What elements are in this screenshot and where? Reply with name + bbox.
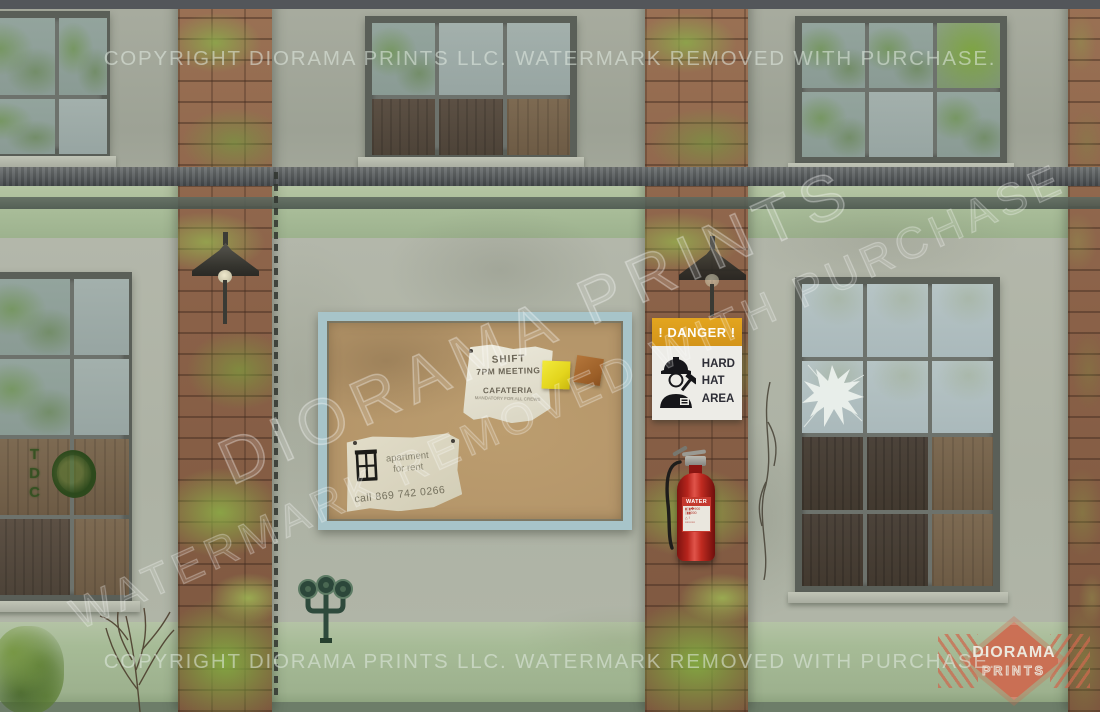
boarded-pane: [74, 519, 129, 595]
brick-pillar-right: [1068, 0, 1100, 712]
window-pane-broken: [802, 361, 863, 434]
push-pin: [451, 439, 455, 443]
boarded-pane: [867, 514, 928, 587]
window-pane: [937, 92, 1000, 157]
window-pane: [867, 284, 928, 357]
extinguisher-label: WATER ▮▯▮�900▯▮▮000△ !▭▭▭: [682, 497, 711, 532]
brick-pillar-left: [178, 0, 272, 712]
window-lower-left: [0, 272, 132, 602]
meeting-note-line2: 7PM MEETING: [464, 365, 552, 377]
pipe-valves: [293, 572, 365, 646]
flyer-phone: call 869 742 0266: [354, 482, 463, 505]
fire-extinguisher: WATER ▮▯▮�900▯▮▮000△ !▭▭▭: [662, 442, 724, 570]
boarded-pane: [802, 514, 863, 587]
window-pane: [932, 361, 993, 434]
window-sill: [0, 156, 116, 167]
window-upper-left: [0, 11, 110, 157]
moss-overlay: [1068, 0, 1100, 712]
danger-line-hard: HARD: [702, 356, 735, 373]
window-upper-right: [795, 16, 1007, 164]
graffiti-area: TDC: [26, 444, 116, 506]
brown-note: [573, 355, 604, 386]
meeting-note-line4: MANDATORY FOR ALL CREWS: [464, 395, 552, 402]
bulletin-board: SHIFT 7PM MEETING CAFATERIA MANDATORY FO…: [318, 312, 632, 530]
steel-beam-lower: [0, 197, 1100, 209]
lamp-bracket: [223, 280, 227, 324]
diorama-print-scene: TDC: [0, 0, 1100, 712]
push-pin: [353, 441, 357, 445]
green-paint-band-top: [0, 184, 1100, 238]
steel-beam-upper: [0, 167, 1100, 186]
lamp-bracket: [710, 284, 714, 316]
extinguisher-label-text: WATER: [683, 498, 710, 506]
wall-lamp-left: [192, 232, 259, 324]
boarded-pane: [372, 99, 435, 155]
window-pane: [0, 99, 55, 154]
window-lower-right: [795, 277, 1000, 593]
dried-vine: [750, 382, 786, 580]
window-pane: [59, 99, 107, 154]
yellow-sticky-note: [542, 361, 571, 390]
window-pane: [802, 92, 865, 157]
window-pane: [0, 279, 70, 355]
window-sill: [788, 592, 1008, 603]
graffiti-tdc-text: TDC: [26, 446, 43, 503]
danger-line-area: AREA: [702, 391, 735, 408]
window-pane: [74, 359, 129, 435]
window-pane: [867, 361, 928, 434]
boarded-pane: [932, 437, 993, 510]
window-pane: [932, 284, 993, 357]
wall-lamp-center: [679, 236, 746, 324]
window-pane: [74, 279, 129, 355]
broken-glass-icon: [802, 363, 864, 429]
window-upper-center: [365, 16, 577, 158]
graffiti-spray-blob: [47, 445, 102, 503]
apartment-rent-flyer: apartment for rent call 869 742 0266: [343, 432, 463, 514]
meeting-note-line3: CAFATERIA: [464, 386, 552, 396]
window-pane: [0, 359, 70, 435]
boarded-pane: [439, 99, 502, 155]
boarded-pane: [802, 437, 863, 510]
building-icon: [354, 446, 382, 483]
hanging-chain: [274, 172, 278, 700]
window-pane: [869, 92, 932, 157]
boarded-pane: [0, 519, 70, 595]
danger-line-hat: HAT: [702, 373, 735, 390]
watermark-top: COPYRIGHT DIORAMA PRINTS LLC. WATERMARK …: [0, 47, 1100, 71]
danger-sign-header: ! DANGER !: [652, 318, 742, 346]
watermark-bottom: COPYRIGHT DIORAMA PRINTS LLC. WATERMARK …: [0, 650, 1100, 674]
moss-overlay: [178, 0, 272, 712]
hard-hat-worker-icon: [656, 354, 696, 410]
boarded-pane: [507, 99, 570, 155]
window-pane: [802, 284, 863, 357]
boarded-pane: [867, 437, 928, 510]
meeting-note-paper: SHIFT 7PM MEETING CAFATERIA MANDATORY FO…: [463, 344, 553, 424]
extinguisher-label-fineprint: ▮▯▮�900▯▮▮000△ !▭▭▭: [683, 506, 710, 526]
boarded-pane: [932, 514, 993, 587]
push-pin: [469, 349, 473, 353]
roof-beam: [0, 0, 1100, 9]
danger-sign: ! DANGER ! HARD HAT AREA: [652, 318, 742, 420]
